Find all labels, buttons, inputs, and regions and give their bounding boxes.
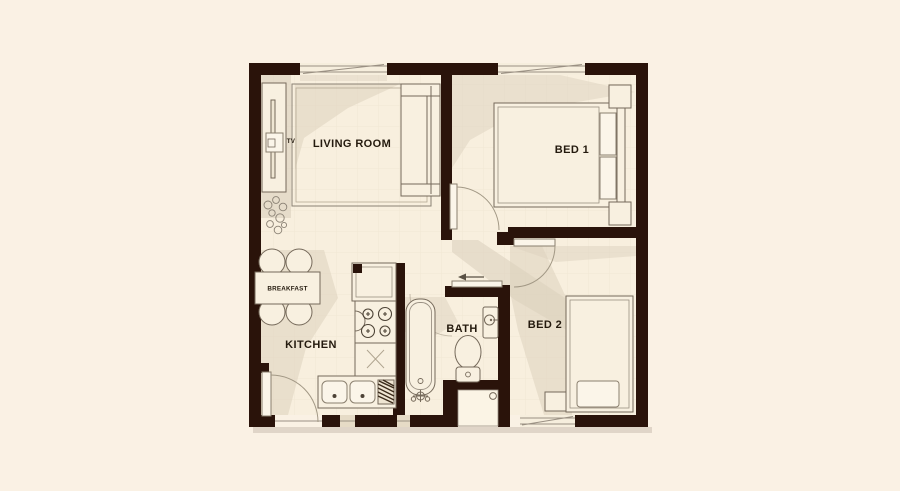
wall-bottom-2 — [322, 415, 340, 427]
window-living-room — [300, 63, 387, 75]
tv-label: TV — [287, 138, 296, 145]
living-room-label: LIVING ROOM — [313, 138, 391, 150]
wall-bottom-1 — [249, 415, 275, 427]
exterior-shadow-strip — [253, 427, 652, 433]
single-bed-icon — [566, 296, 633, 412]
wall-left — [249, 63, 261, 427]
wall-bed2-door-post — [497, 232, 514, 245]
window-bed1 — [498, 63, 585, 75]
wall-right — [636, 63, 648, 427]
window-bed2 — [520, 415, 575, 427]
nightstand-icon — [609, 202, 631, 225]
utility-closet — [458, 390, 498, 426]
chair — [259, 249, 285, 275]
bed1-label: BED 1 — [555, 144, 589, 156]
door-bed2-leaf — [514, 239, 555, 246]
bed2-label: BED 2 — [528, 319, 562, 331]
kitchen-sink-icon — [318, 376, 396, 408]
sofa-icon — [401, 84, 440, 196]
wall-bath-top — [445, 286, 498, 297]
nightstand-icon — [609, 85, 631, 108]
floor-plan-page: LIVING ROOM TV BED 1 BED 2 — [0, 0, 900, 491]
door-entrance-leaf — [262, 372, 271, 416]
headboard — [617, 108, 625, 202]
pillow — [577, 381, 619, 407]
wall-bottom-4 — [410, 415, 443, 427]
wall-bath-bed2-divider — [498, 285, 510, 427]
sink-drainer — [378, 380, 394, 404]
sink-basin — [350, 381, 375, 403]
bath-label: BATH — [446, 323, 477, 335]
toilet-icon — [455, 336, 481, 383]
tv-unit-icon — [262, 83, 286, 192]
kitchen-counter — [355, 343, 396, 376]
door-bed1-leaf — [450, 184, 457, 229]
breakfast-label: BREAKFAST — [267, 286, 307, 293]
bathtub-icon — [406, 299, 435, 402]
floor-plan-drawing: LIVING ROOM TV BED 1 BED 2 — [0, 0, 900, 491]
wall-bed1-bed2-divider — [508, 227, 636, 238]
tv-media-box — [266, 133, 283, 152]
pillow — [600, 113, 616, 155]
nightstand-icon — [545, 392, 566, 411]
pillow — [600, 157, 616, 199]
stove-icon — [355, 301, 396, 343]
sink-basin — [322, 381, 347, 403]
bed1-room: BED 1 — [494, 85, 631, 225]
shadow-window-1 — [300, 75, 387, 81]
wash-basin-icon — [483, 307, 498, 338]
breakfast-table-icon: BREAKFAST — [255, 249, 320, 325]
kitchen-label: KITCHEN — [285, 339, 337, 351]
wall-bottom-3 — [355, 415, 397, 427]
wall-bottom-5 — [575, 415, 648, 427]
fridge-icon — [352, 263, 396, 301]
door-bath-leaf — [452, 281, 502, 287]
chair — [286, 249, 312, 275]
